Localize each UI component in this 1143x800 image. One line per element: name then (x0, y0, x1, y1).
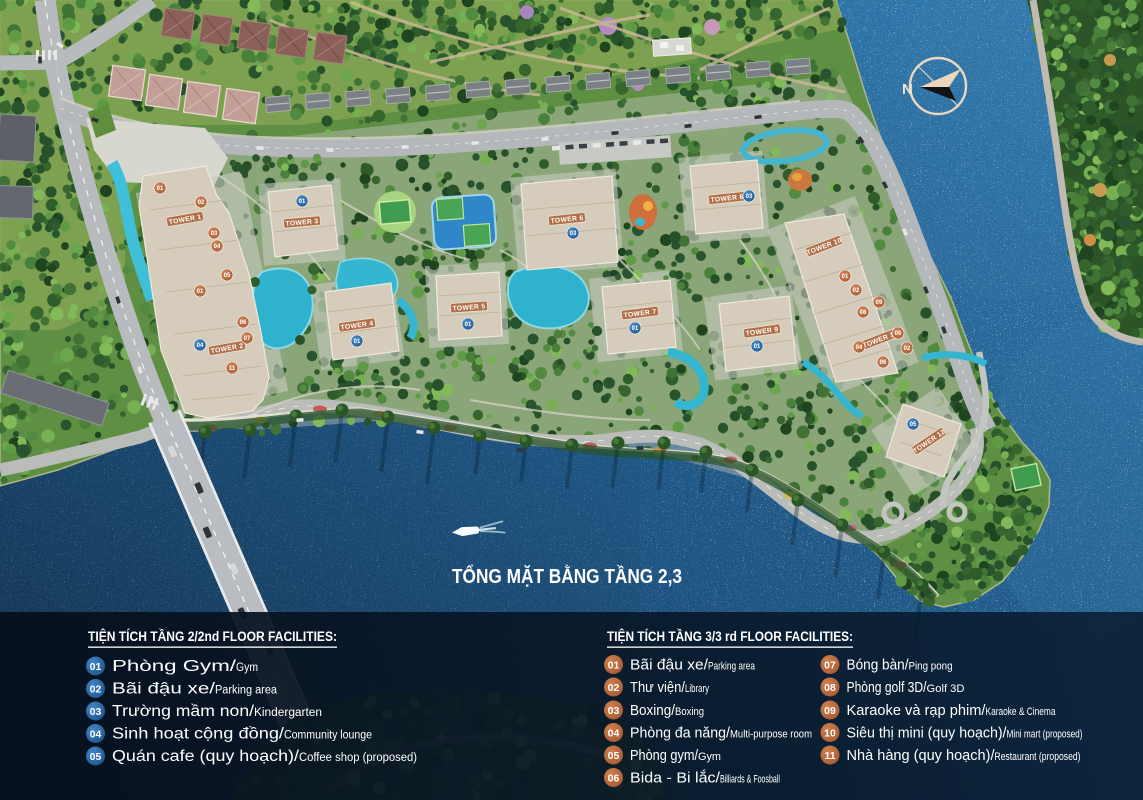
svg-text:04: 04 (90, 728, 102, 740)
svg-text:02: 02 (608, 682, 620, 694)
svg-text:09: 09 (824, 705, 836, 717)
svg-text:11: 11 (824, 750, 835, 762)
svg-text:01: 01 (90, 661, 102, 673)
svg-text:08: 08 (824, 682, 836, 694)
svg-text:02: 02 (853, 288, 860, 294)
svg-text:Bãi đậu xe/Parking area: Bãi đậu xe/Parking area (630, 658, 756, 674)
svg-text:03: 03 (608, 705, 620, 717)
svg-text:Boxing/Boxing: Boxing/Boxing (630, 703, 704, 719)
svg-text:01: 01 (465, 322, 472, 328)
svg-text:04: 04 (608, 727, 620, 739)
svg-text:04: 04 (197, 343, 204, 349)
svg-text:01: 01 (354, 339, 361, 345)
svg-text:01: 01 (632, 326, 639, 332)
svg-text:TỔNG MẶT BẰNG TẦNG 2,3: TỔNG MẶT BẰNG TẦNG 2,3 (452, 564, 682, 588)
svg-text:03: 03 (90, 706, 102, 718)
svg-text:07: 07 (824, 659, 836, 671)
svg-text:06: 06 (608, 772, 620, 784)
svg-text:Phòng golf 3D/Golf 3D: Phòng golf 3D/Golf 3D (847, 680, 965, 696)
svg-text:Phòng gym/Gym: Phòng gym/Gym (630, 748, 721, 764)
svg-text:02: 02 (904, 346, 911, 352)
svg-text:03: 03 (570, 231, 577, 237)
svg-text:01: 01 (299, 199, 306, 205)
svg-text:03: 03 (746, 194, 753, 200)
svg-text:01: 01 (157, 186, 164, 192)
svg-text:05: 05 (608, 750, 620, 762)
svg-text:TIỆN TÍCH TẦNG 2/2nd FLOOR FAC: TIỆN TÍCH TẦNG 2/2nd FLOOR FACILITIES: (88, 629, 337, 644)
svg-text:06: 06 (895, 331, 902, 337)
svg-text:06: 06 (240, 320, 247, 326)
svg-text:04: 04 (856, 345, 863, 351)
svg-text:N: N (902, 81, 913, 98)
svg-text:01: 01 (608, 659, 620, 671)
svg-text:01: 01 (754, 344, 761, 350)
svg-text:10: 10 (824, 727, 836, 739)
svg-text:03: 03 (211, 231, 218, 237)
svg-text:Karaoke và rạp phim/Karaoke &: Karaoke và rạp phim/Karaoke & Cinema (847, 703, 1057, 719)
svg-text:TIỆN TÍCH TẦNG 3/3 rd FLOOR FA: TIỆN TÍCH TẦNG 3/3 rd FLOOR FACILITIES: (607, 629, 853, 644)
svg-text:Nhà hàng (quy hoạch)/Restauran: Nhà hàng (quy hoạch)/Restaurant (propose… (847, 748, 1081, 764)
svg-text:04: 04 (214, 244, 221, 250)
svg-text:02: 02 (198, 200, 205, 206)
svg-text:05: 05 (910, 422, 917, 428)
svg-text:01: 01 (197, 289, 204, 295)
svg-text:08: 08 (860, 310, 867, 316)
svg-text:01: 01 (842, 274, 849, 280)
svg-text:Thư viện/Library: Thư viện/Library (630, 680, 709, 696)
svg-text:11: 11 (229, 366, 236, 372)
svg-text:02: 02 (90, 683, 102, 695)
svg-text:Phòng đa năng/Multi-purpose ro: Phòng đa năng/Multi-purpose room (630, 726, 812, 742)
svg-text:Bóng bàn/Ping pong: Bóng bàn/Ping pong (847, 658, 953, 674)
svg-text:05: 05 (224, 273, 231, 279)
svg-text:09: 09 (876, 300, 883, 306)
svg-text:07: 07 (244, 336, 251, 342)
svg-text:05: 05 (90, 751, 102, 763)
svg-text:06: 06 (880, 360, 887, 366)
svg-text:Siêu thị mini (quy hoạch)/Mini: Siêu thị mini (quy hoạch)/Mini mart (pro… (847, 726, 1083, 742)
